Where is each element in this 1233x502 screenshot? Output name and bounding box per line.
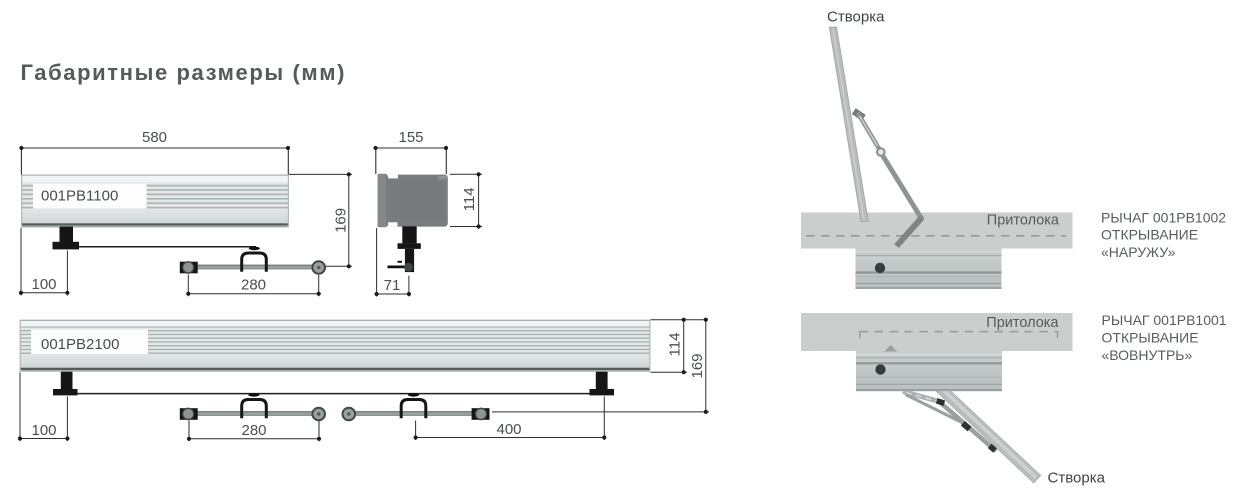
svg-text:100: 100 bbox=[31, 422, 56, 439]
svg-text:169: 169 bbox=[689, 353, 706, 378]
svg-text:«НАРУЖУ»: «НАРУЖУ» bbox=[1101, 244, 1176, 260]
svg-text:ОТКРЫВАНИЕ: ОТКРЫВАНИЕ bbox=[1102, 329, 1199, 345]
svg-text:Габаритные размеры (мм): Габаритные размеры (мм) bbox=[21, 60, 347, 85]
svg-text:169: 169 bbox=[333, 208, 350, 233]
svg-text:«ВОВНУТРЬ»: «ВОВНУТРЬ» bbox=[1102, 347, 1193, 363]
svg-text:400: 400 bbox=[496, 421, 521, 438]
svg-text:Притолока: Притолока bbox=[986, 315, 1059, 331]
svg-text:001PB2100: 001PB2100 bbox=[41, 336, 119, 353]
svg-text:РЫЧАГ 001PB1001: РЫЧАГ 001PB1001 bbox=[1102, 312, 1227, 328]
svg-text:Притолока: Притолока bbox=[987, 213, 1060, 229]
svg-text:Створка: Створка bbox=[827, 9, 885, 26]
svg-text:71: 71 bbox=[384, 277, 401, 294]
svg-text:100: 100 bbox=[31, 276, 56, 293]
svg-text:РЫЧАГ 001PB1002: РЫЧАГ 001PB1002 bbox=[1101, 209, 1226, 225]
svg-text:280: 280 bbox=[241, 422, 266, 439]
svg-text:155: 155 bbox=[398, 129, 423, 146]
svg-text:114: 114 bbox=[461, 187, 478, 211]
svg-text:114: 114 bbox=[667, 333, 684, 357]
svg-text:280: 280 bbox=[241, 277, 266, 294]
svg-text:ОТКРЫВАНИЕ: ОТКРЫВАНИЕ bbox=[1101, 227, 1198, 243]
svg-text:001PB1100: 001PB1100 bbox=[41, 188, 118, 205]
svg-text:580: 580 bbox=[142, 129, 167, 146]
svg-text:Створка: Створка bbox=[1048, 470, 1106, 487]
